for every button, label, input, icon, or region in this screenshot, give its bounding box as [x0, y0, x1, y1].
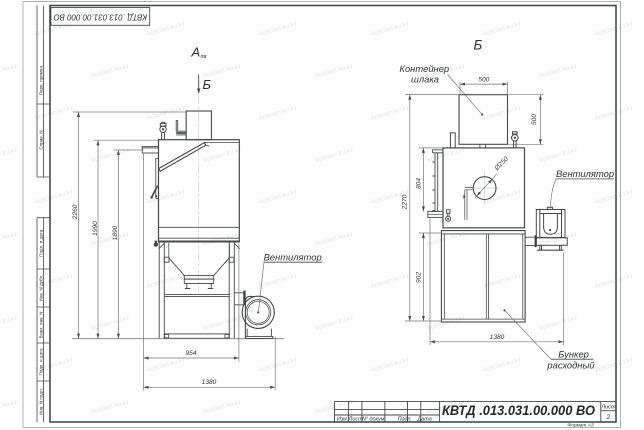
svg-text:804: 804 — [416, 178, 423, 189]
svg-text:954: 954 — [185, 350, 196, 357]
svg-text:kotelan-kv.kz: kotelan-kv.kz — [0, 146, 19, 164]
svg-text:kotelan-kv.kz: kotelan-kv.kz — [203, 146, 243, 164]
svg-text:пв: пв — [201, 54, 207, 60]
svg-text:1380: 1380 — [490, 334, 505, 341]
svg-text:2270: 2270 — [401, 194, 408, 210]
svg-text:kotelan-kv.kz: kotelan-kv.kz — [203, 314, 243, 332]
svg-text:kotelan-kv.kz: kotelan-kv.kz — [539, 314, 579, 332]
svg-text:kotelan-kv.kz: kotelan-kv.kz — [315, 146, 355, 164]
svg-text:расходный: расходный — [546, 359, 595, 370]
svg-text:kotelan-kv.kz: kotelan-kv.kz — [91, 146, 131, 164]
svg-text:kotelan-kv.kz: kotelan-kv.kz — [595, 356, 635, 374]
svg-text:Б: Б — [474, 38, 483, 53]
svg-text:Ø250: Ø250 — [493, 155, 510, 172]
svg-text:kotelan-kv.kz: kotelan-kv.kz — [483, 104, 523, 122]
svg-text:Формат А3: Формат А3 — [567, 422, 594, 428]
svg-text:kotelan-kv.kz: kotelan-kv.kz — [91, 62, 131, 80]
svg-text:kotelan-kv.kz: kotelan-kv.kz — [483, 188, 523, 206]
svg-text:kotelan-kv.kz: kotelan-kv.kz — [259, 188, 299, 206]
svg-text:2: 2 — [606, 414, 611, 421]
svg-text:902: 902 — [416, 272, 423, 283]
svg-text:kotelan-kv.kz: kotelan-kv.kz — [35, 104, 75, 122]
svg-text:kotelan-kv.kz: kotelan-kv.kz — [259, 20, 299, 38]
svg-text:kotelan-kv.kz: kotelan-kv.kz — [35, 20, 75, 38]
svg-text:kotelan-kv.kz: kotelan-kv.kz — [259, 104, 299, 122]
svg-text:kotelan-kv.kz: kotelan-kv.kz — [203, 398, 243, 416]
svg-text:kotelan-kv.kz: kotelan-kv.kz — [315, 230, 355, 248]
svg-text:kotelan-kv.kz: kotelan-kv.kz — [315, 62, 355, 80]
svg-text:kotelan-kv.kz: kotelan-kv.kz — [483, 356, 523, 374]
svg-text:kotelan-kv.kz: kotelan-kv.kz — [595, 104, 635, 122]
svg-text:Справ. N: Справ. N — [38, 130, 43, 149]
svg-text:Вентилятор: Вентилятор — [264, 251, 322, 262]
svg-text:Бункер: Бункер — [558, 348, 589, 359]
svg-text:kotelan-kv.kz: kotelan-kv.kz — [427, 314, 467, 332]
svg-text:2260: 2260 — [72, 204, 79, 220]
svg-text:Инв. N подл.: Инв. N подл. — [38, 388, 43, 415]
svg-text:kotelan-kv.kz: kotelan-kv.kz — [595, 272, 635, 290]
svg-text:kotelan-kv.kz: kotelan-kv.kz — [371, 272, 411, 290]
svg-text:Перв. примен.: Перв. примен. — [38, 65, 43, 96]
svg-text:500: 500 — [531, 114, 538, 125]
svg-text:kotelan-kv.kz: kotelan-kv.kz — [371, 356, 411, 374]
svg-text:kotelan-kv.kz: kotelan-kv.kz — [539, 146, 579, 164]
svg-text:kotelan-kv.kz: kotelan-kv.kz — [91, 398, 131, 416]
svg-text:kotelan-kv.kz: kotelan-kv.kz — [371, 104, 411, 122]
svg-text:Дата: Дата — [416, 417, 431, 423]
svg-text:kotelan-kv.kz: kotelan-kv.kz — [427, 146, 467, 164]
svg-text:kotelan-kv.kz: kotelan-kv.kz — [595, 20, 635, 38]
svg-text:kotelan-kv.kz: kotelan-kv.kz — [483, 20, 523, 38]
svg-text:kotelan-kv.kz: kotelan-kv.kz — [539, 62, 579, 80]
svg-text:kotelan-kv.kz: kotelan-kv.kz — [0, 62, 19, 80]
svg-text:1990: 1990 — [92, 221, 99, 236]
svg-text:kotelan-kv.kz: kotelan-kv.kz — [147, 20, 187, 38]
svg-text:Лист: Лист — [600, 405, 616, 411]
svg-text:kotelan-kv.kz: kotelan-kv.kz — [147, 272, 187, 290]
svg-text:Взам. инв. N: Взам. инв. N — [38, 312, 43, 339]
svg-text:kotelan-kv.kz: kotelan-kv.kz — [595, 188, 635, 206]
svg-text:N° докум.: N° докум. — [362, 417, 386, 423]
svg-text:Б: Б — [203, 77, 212, 92]
svg-text:kotelan-kv.kz: kotelan-kv.kz — [259, 356, 299, 374]
svg-text:1890: 1890 — [112, 225, 119, 240]
svg-text:500: 500 — [478, 76, 489, 83]
svg-text:kotelan-kv.kz: kotelan-kv.kz — [147, 356, 187, 374]
svg-text:kotelan-kv.kz: kotelan-kv.kz — [91, 314, 131, 332]
svg-text:kotelan-kv.kz: kotelan-kv.kz — [35, 188, 75, 206]
svg-text:КВТД .013.031.00.000 ВО: КВТД .013.031.00.000 ВО — [442, 403, 595, 418]
svg-text:kotelan-kv.kz: kotelan-kv.kz — [0, 398, 19, 416]
svg-text:КВТД .013.031.00.000 ВО: КВТД .013.031.00.000 ВО — [54, 12, 148, 21]
svg-text:А: А — [191, 45, 201, 60]
svg-text:Вентилятор: Вентилятор — [556, 168, 614, 179]
svg-text:kotelan-kv.kz: kotelan-kv.kz — [0, 314, 19, 332]
svg-text:шлака: шлака — [411, 74, 439, 85]
svg-text:Контейнер: Контейнер — [399, 63, 449, 74]
svg-text:1380: 1380 — [202, 379, 217, 386]
svg-text:kotelan-kv.kz: kotelan-kv.kz — [371, 20, 411, 38]
svg-text:kotelan-kv.kz: kotelan-kv.kz — [0, 230, 19, 248]
svg-text:kotelan-kv.kz: kotelan-kv.kz — [147, 104, 187, 122]
svg-text:Подп. и дата: Подп. и дата — [38, 229, 43, 257]
svg-text:Лист: Лист — [348, 417, 363, 423]
svg-text:Инв. N дубл.: Инв. N дубл. — [38, 275, 43, 302]
svg-text:Изм.: Изм. — [337, 417, 349, 423]
svg-text:kotelan-kv.kz: kotelan-kv.kz — [259, 272, 299, 290]
svg-text:Подп. и дата: Подп. и дата — [38, 348, 43, 376]
svg-text:Подп.: Подп. — [398, 417, 412, 423]
svg-text:kotelan-kv.kz: kotelan-kv.kz — [315, 314, 355, 332]
